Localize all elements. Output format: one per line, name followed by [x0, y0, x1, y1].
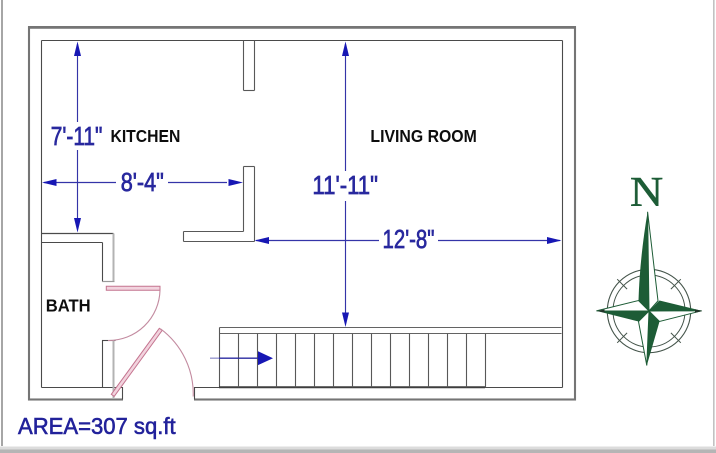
svg-text:11'-11": 11'-11" — [312, 171, 378, 200]
svg-text:8'-4": 8'-4" — [121, 170, 164, 198]
svg-text:N: N — [630, 169, 663, 216]
svg-text:AREA=307 sq.ft: AREA=307 sq.ft — [18, 414, 176, 440]
svg-text:LIVING ROOM: LIVING ROOM — [370, 126, 476, 146]
svg-text:KITCHEN: KITCHEN — [110, 126, 180, 146]
svg-text:BATH: BATH — [46, 296, 91, 315]
svg-text:12'-8": 12'-8" — [383, 225, 435, 254]
svg-text:7'-11": 7'-11" — [51, 122, 103, 150]
